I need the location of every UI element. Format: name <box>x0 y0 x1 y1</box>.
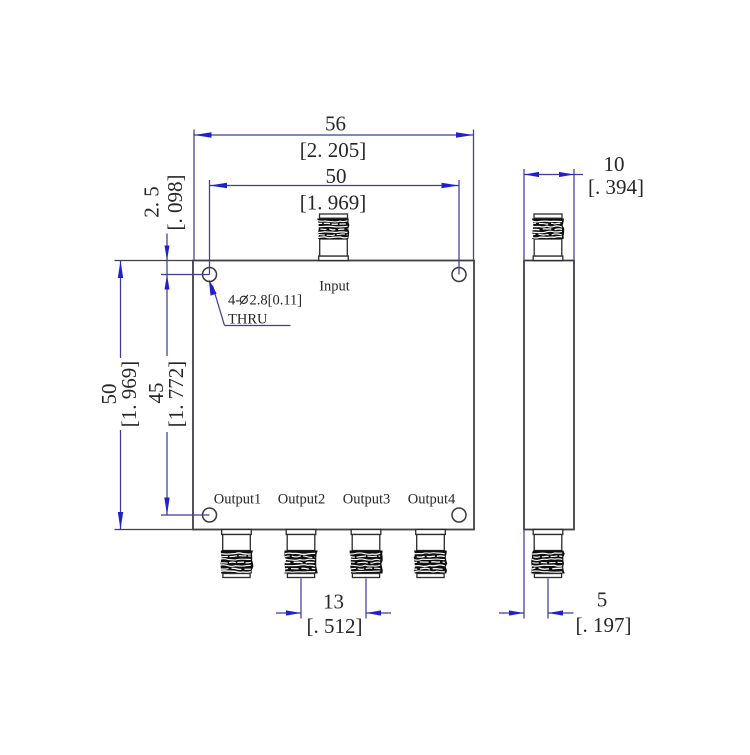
svg-text:[. 394]: [. 394] <box>588 175 644 199</box>
svg-text:50: 50 <box>326 164 347 188</box>
svg-text:2. 5: 2. 5 <box>140 186 164 218</box>
svg-text:[2. 205]: [2. 205] <box>300 138 367 162</box>
svg-text:Output4: Output4 <box>408 492 456 508</box>
svg-text:[. 512]: [. 512] <box>307 614 363 638</box>
svg-text:13: 13 <box>323 590 344 614</box>
svg-text:2.8[0.11]: 2.8[0.11] <box>250 293 303 309</box>
svg-text:THRU: THRU <box>228 312 268 328</box>
svg-text:[. 197]: [. 197] <box>576 613 632 637</box>
svg-text:5: 5 <box>597 588 608 612</box>
svg-text:Output2: Output2 <box>278 492 326 508</box>
svg-text:[. 098]: [. 098] <box>163 175 187 231</box>
svg-text:Input: Input <box>319 279 350 295</box>
svg-text:4-: 4- <box>228 293 240 309</box>
svg-text:Output1: Output1 <box>214 492 262 508</box>
svg-text:[1. 772]: [1. 772] <box>164 361 188 428</box>
svg-text:10: 10 <box>604 152 625 176</box>
svg-text:[1. 969]: [1. 969] <box>117 361 141 428</box>
svg-text:[1. 969]: [1. 969] <box>300 191 367 215</box>
svg-text:Output3: Output3 <box>343 492 391 508</box>
svg-text:56: 56 <box>325 112 346 136</box>
